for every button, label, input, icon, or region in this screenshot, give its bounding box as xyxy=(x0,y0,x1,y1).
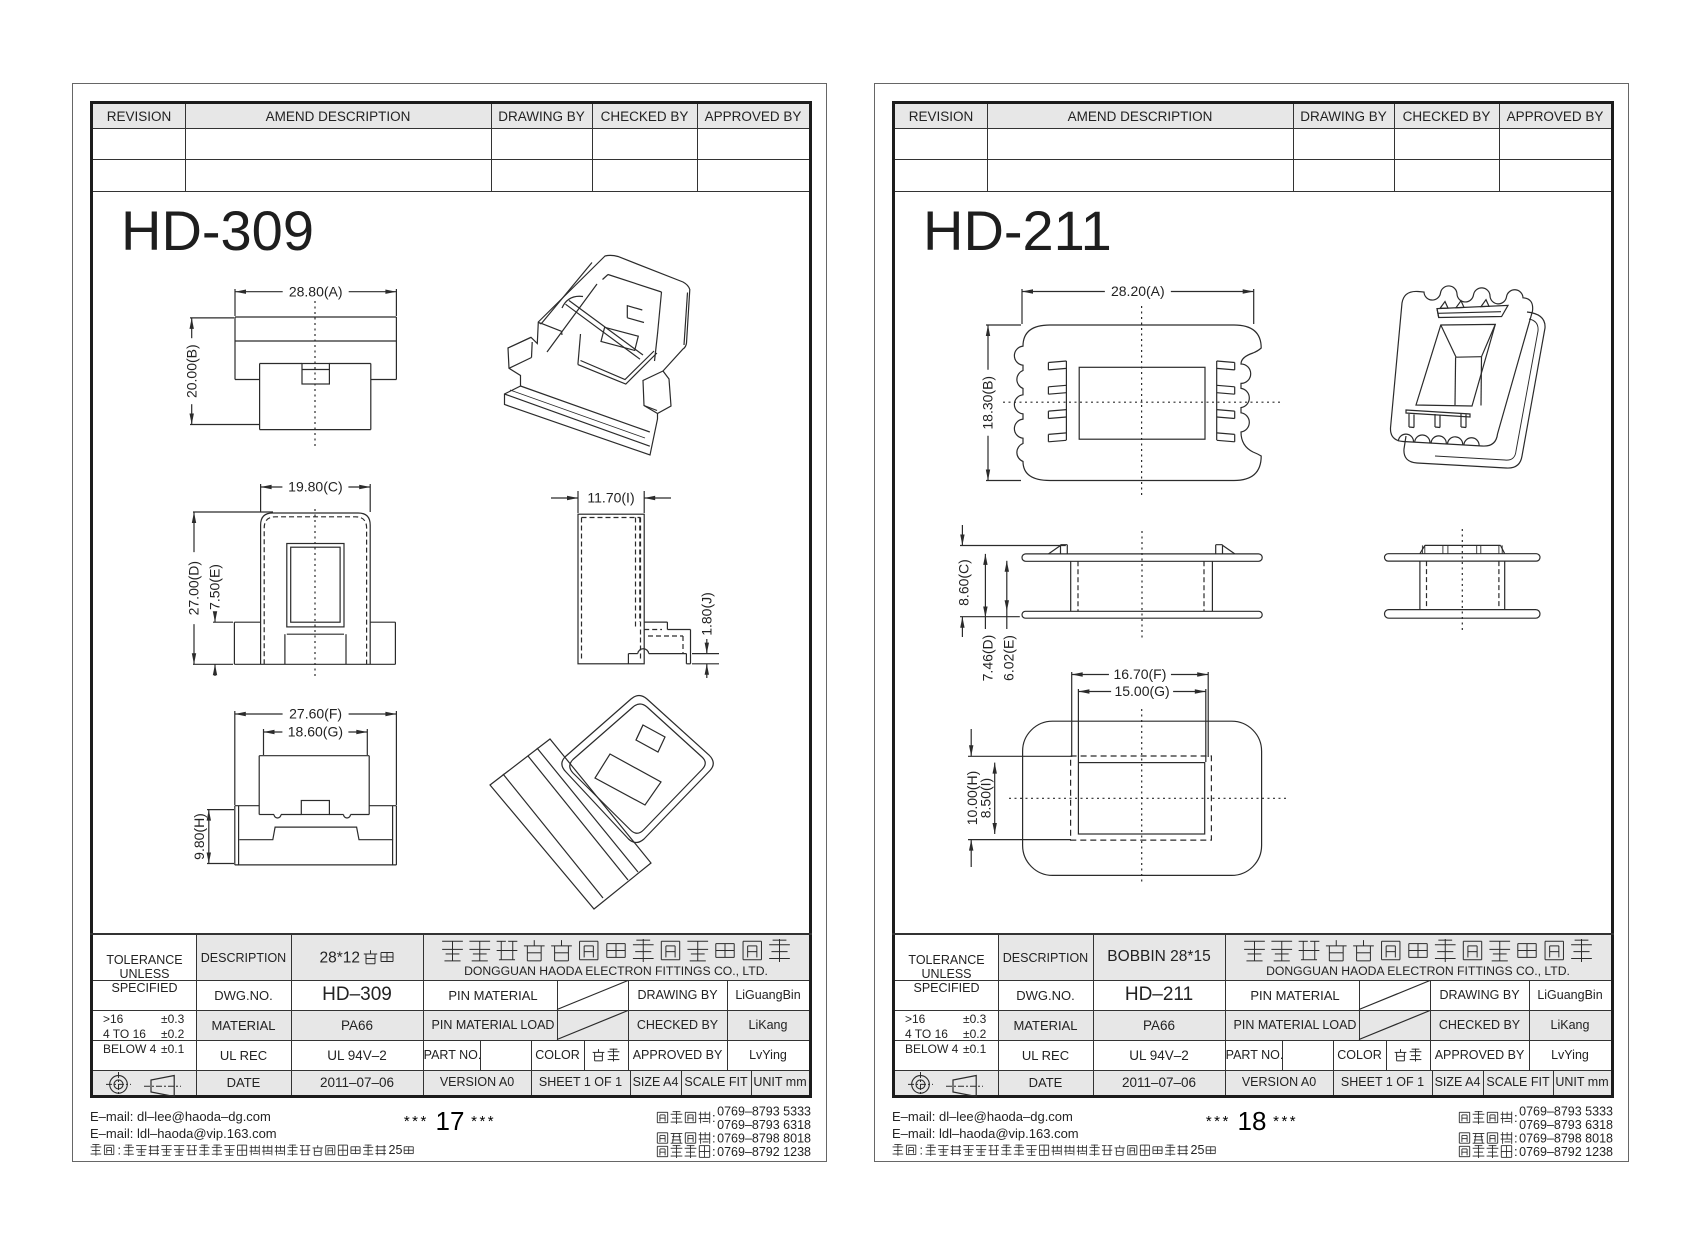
svg-text:15.00(G): 15.00(G) xyxy=(1114,683,1169,699)
svg-text:7.46(D): 7.46(D) xyxy=(979,635,995,682)
svg-text:28*12: 28*12 xyxy=(319,949,360,966)
svg-text:0769–8793 6318: 0769–8793 6318 xyxy=(717,1118,811,1132)
svg-text:19.80(C): 19.80(C) xyxy=(288,479,342,495)
svg-text:25: 25 xyxy=(389,1143,403,1157)
svg-text:28.20(A): 28.20(A) xyxy=(1111,283,1165,299)
svg-text:25: 25 xyxy=(1191,1143,1205,1157)
svg-text:0769–8798 8018: 0769–8798 8018 xyxy=(717,1132,811,1146)
svg-text:0769–8793 5333: 0769–8793 5333 xyxy=(1519,1105,1613,1119)
svg-text:1.80(J): 1.80(J) xyxy=(699,592,715,636)
svg-text::: : xyxy=(712,1110,716,1125)
svg-text::: : xyxy=(118,1144,121,1158)
svg-text:11.70(I): 11.70(I) xyxy=(587,490,634,506)
svg-text::: : xyxy=(1514,1110,1518,1125)
svg-text:0769–8793 6318: 0769–8793 6318 xyxy=(1519,1118,1613,1132)
svg-text::: : xyxy=(1514,1144,1518,1159)
svg-text::: : xyxy=(920,1144,923,1158)
svg-text:27.00(D): 27.00(D) xyxy=(186,561,202,615)
svg-text:0769–8792 1238: 0769–8792 1238 xyxy=(1519,1145,1613,1159)
svg-text:8.50(I): 8.50(I) xyxy=(977,778,993,818)
svg-text:28.80(A): 28.80(A) xyxy=(289,283,343,299)
svg-text:8.60(C): 8.60(C) xyxy=(955,559,971,606)
svg-text:7.50(E): 7.50(E) xyxy=(207,564,223,610)
svg-text:27.60(F): 27.60(F) xyxy=(289,706,342,722)
svg-text:0769–8798 8018: 0769–8798 8018 xyxy=(1519,1132,1613,1146)
svg-text:18.60(G): 18.60(G) xyxy=(288,724,343,740)
svg-text:9.80(H): 9.80(H) xyxy=(191,813,207,860)
svg-text:0769–8792 1238: 0769–8792 1238 xyxy=(717,1145,811,1159)
svg-text:20.00(B): 20.00(B) xyxy=(183,344,199,398)
svg-text:18.30(B): 18.30(B) xyxy=(980,376,996,430)
svg-text:6.02(E): 6.02(E) xyxy=(1000,635,1016,681)
svg-text:16.70(F): 16.70(F) xyxy=(1113,666,1166,682)
svg-text:0769–8793 5333: 0769–8793 5333 xyxy=(717,1105,811,1119)
svg-text::: : xyxy=(712,1144,716,1159)
